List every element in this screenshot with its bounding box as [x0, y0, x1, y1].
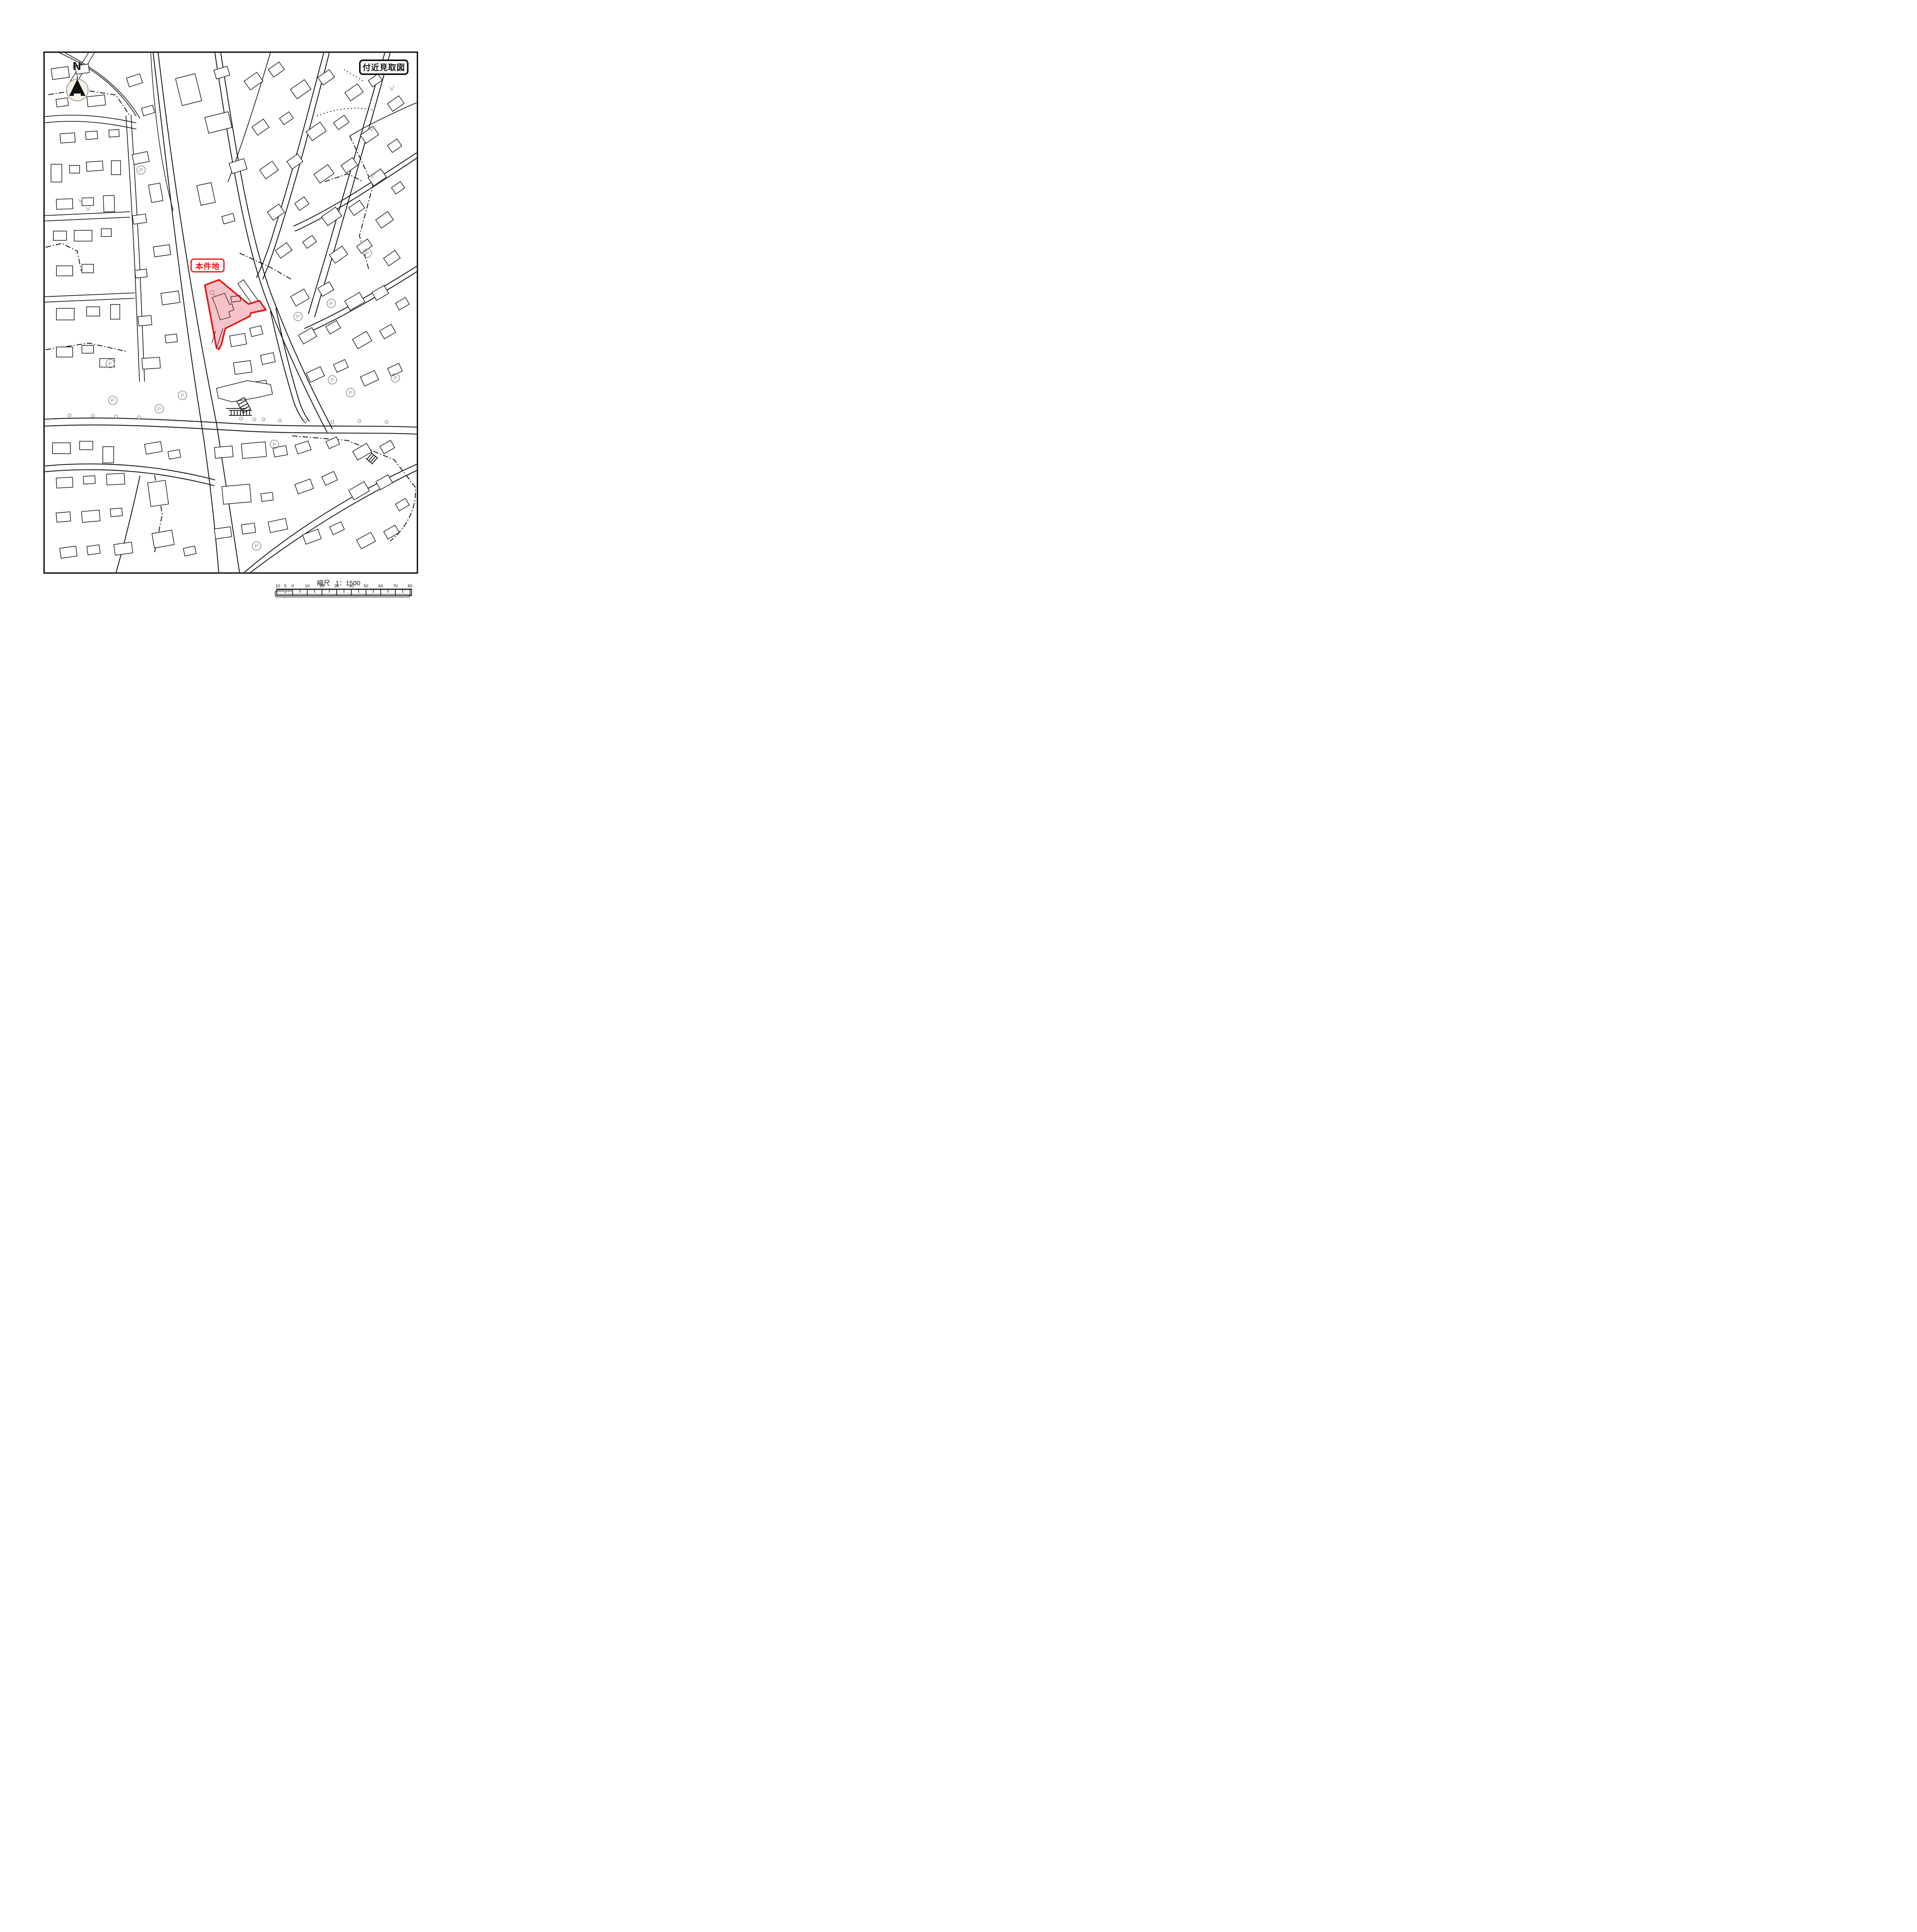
- vicinity-map-page: P P P P P P P P P P P P P: [0, 0, 479, 678]
- parking-symbol: P: [393, 375, 397, 381]
- parking-symbol: P: [111, 397, 114, 403]
- parking-symbol: P: [365, 250, 369, 256]
- parking-symbol: P: [272, 441, 276, 447]
- map-drawing: P P P P P P P P P P P P P: [0, 0, 479, 678]
- scale-label: 10: [276, 584, 280, 588]
- parking-symbol: P: [180, 392, 184, 398]
- scale-ratio: 1：1500: [335, 578, 360, 587]
- scale-label: 10: [305, 584, 310, 588]
- parking-symbol: P: [157, 406, 161, 412]
- map-title-box: 付近見取図: [359, 60, 409, 75]
- north-label: N: [71, 60, 83, 73]
- scale-label: 80: [408, 584, 412, 588]
- scale-label: 60: [378, 584, 383, 588]
- parking-symbol: P: [330, 377, 334, 383]
- scale-label: 70: [393, 584, 398, 588]
- scale-label: 50: [364, 584, 368, 588]
- subject-site-label: 本件地: [191, 259, 225, 272]
- map-title-label: 付近見取図: [363, 61, 405, 73]
- scale-label: 0: [291, 584, 294, 588]
- parking-symbol: P: [108, 361, 112, 367]
- scale-label: 5: [284, 584, 286, 588]
- parking-symbol: P: [255, 543, 258, 549]
- scale-caption: 縮尺: [317, 578, 330, 587]
- parking-symbol: P: [329, 300, 333, 306]
- parking-symbol: P: [139, 167, 143, 173]
- scale-text: 縮尺 1：1500: [317, 578, 360, 587]
- parking-symbol: P: [296, 313, 300, 320]
- subject-site-label-text: 本件地: [196, 260, 220, 271]
- parking-symbol: P: [349, 389, 352, 396]
